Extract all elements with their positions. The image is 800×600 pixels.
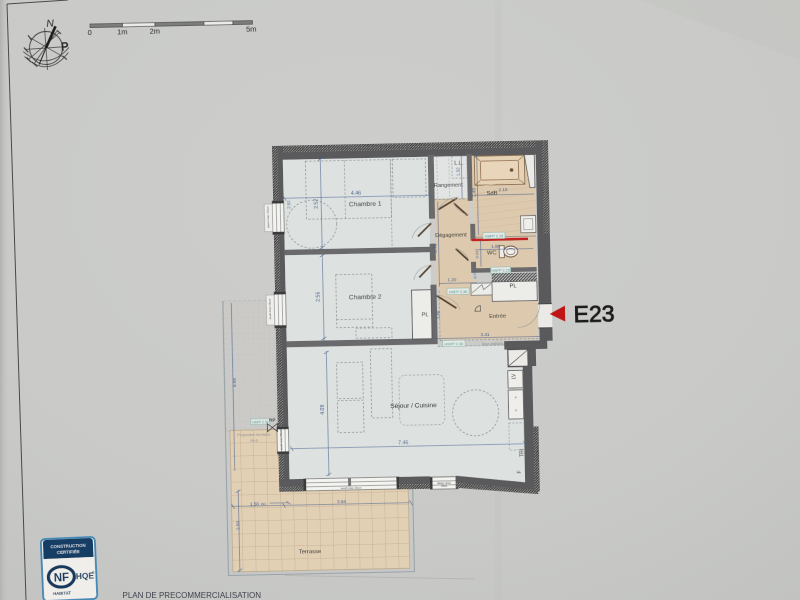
svg-text:R+5: R+5 — [250, 438, 258, 443]
svg-text:PL: PL — [509, 283, 517, 289]
svg-text:appui mac 15cm: appui mac 15cm — [266, 206, 270, 229]
svg-text:seuil max 15cm: seuil max 15cm — [279, 429, 283, 450]
svg-text:2.92: 2.92 — [286, 200, 291, 209]
svg-text:2.56: 2.56 — [316, 292, 322, 302]
svg-text:HSFP 2.15: HSFP 2.15 — [485, 234, 504, 238]
svg-text:faux plafond: faux plafond — [482, 342, 503, 346]
svg-text:PL: PL — [421, 312, 429, 318]
svg-text:2.73: 2.73 — [433, 243, 438, 252]
svg-text:15cm: 15cm — [441, 484, 447, 488]
svg-text:2.50: 2.50 — [235, 521, 240, 530]
svg-text:Rangement: Rangement — [434, 183, 463, 190]
svg-text:P: P — [61, 41, 70, 54]
svg-text:2.52: 2.52 — [314, 199, 320, 209]
svg-text:7.46: 7.46 — [398, 440, 408, 446]
svg-text:NF: NF — [54, 572, 70, 585]
svg-text:Entrée: Entrée — [489, 314, 506, 320]
svg-text:N: N — [46, 17, 55, 30]
svg-text:Chambre 1: Chambre 1 — [349, 201, 382, 209]
svg-text:®: ® — [92, 570, 95, 575]
svg-text:PLAN DE PRECOMMERCIALISATION: PLAN DE PRECOMMERCIALISATION — [123, 591, 262, 600]
svg-text:1m: 1m — [117, 27, 128, 36]
svg-text:CERTIFIÉE: CERTIFIÉE — [57, 549, 80, 555]
svg-text:2m: 2m — [150, 27, 161, 36]
svg-text:E23: E23 — [573, 300, 614, 327]
svg-text:L.L.: L.L. — [454, 160, 464, 166]
svg-text:HSFP 2.30: HSFP 2.30 — [449, 290, 468, 294]
svg-text:1.48: 1.48 — [436, 310, 441, 319]
svg-text:RP: RP — [269, 417, 275, 422]
svg-text:+: + — [515, 408, 518, 413]
svg-text:2.10: 2.10 — [498, 187, 507, 192]
svg-text:1.50: 1.50 — [250, 501, 259, 506]
svg-text:Projection terrasse: Projection terrasse — [237, 432, 271, 438]
svg-text:LV: LV — [511, 373, 517, 380]
svg-text:4.46: 4.46 — [351, 191, 361, 197]
svg-text:3.94: 3.94 — [337, 499, 346, 504]
svg-text:3.41: 3.41 — [480, 332, 489, 337]
svg-text:HSFP 2.15: HSFP 2.15 — [491, 269, 510, 273]
svg-text:4.09: 4.09 — [320, 404, 326, 414]
svg-text:1.32: 1.32 — [455, 167, 460, 176]
svg-text:5.94: 5.94 — [232, 378, 237, 387]
svg-text:0.93: 0.93 — [474, 250, 479, 259]
svg-text:0: 0 — [88, 28, 92, 37]
svg-text:1.20: 1.20 — [447, 277, 456, 282]
svg-text:Chambre 2: Chambre 2 — [349, 294, 382, 302]
svg-text:F: F — [517, 470, 523, 473]
svg-text:HSFP 2.30: HSFP 2.30 — [252, 420, 269, 424]
svg-text:1.80: 1.80 — [491, 244, 500, 249]
svg-text:+: + — [514, 395, 517, 400]
svg-text:SdB: SdB — [487, 191, 498, 197]
svg-text:HSFP 2.30: HSFP 2.30 — [445, 342, 464, 346]
svg-text:seuil max 15cm: seuil max 15cm — [268, 298, 272, 319]
svg-text:Dégagement: Dégagement — [435, 232, 467, 239]
svg-text:HABITAT: HABITAT — [53, 590, 71, 596]
svg-text:5m: 5m — [246, 25, 257, 34]
svg-text:2.49: 2.49 — [472, 188, 477, 197]
svg-text:0.76: 0.76 — [472, 270, 477, 279]
svg-text:TRI: TRI — [519, 449, 525, 457]
svg-text:Séjour / Cuisine: Séjour / Cuisine — [390, 402, 437, 410]
svg-text:WC: WC — [487, 250, 497, 256]
svg-text:seuil max 15cm: seuil max 15cm — [341, 486, 362, 490]
svg-text:Terrasse: Terrasse — [299, 549, 321, 555]
